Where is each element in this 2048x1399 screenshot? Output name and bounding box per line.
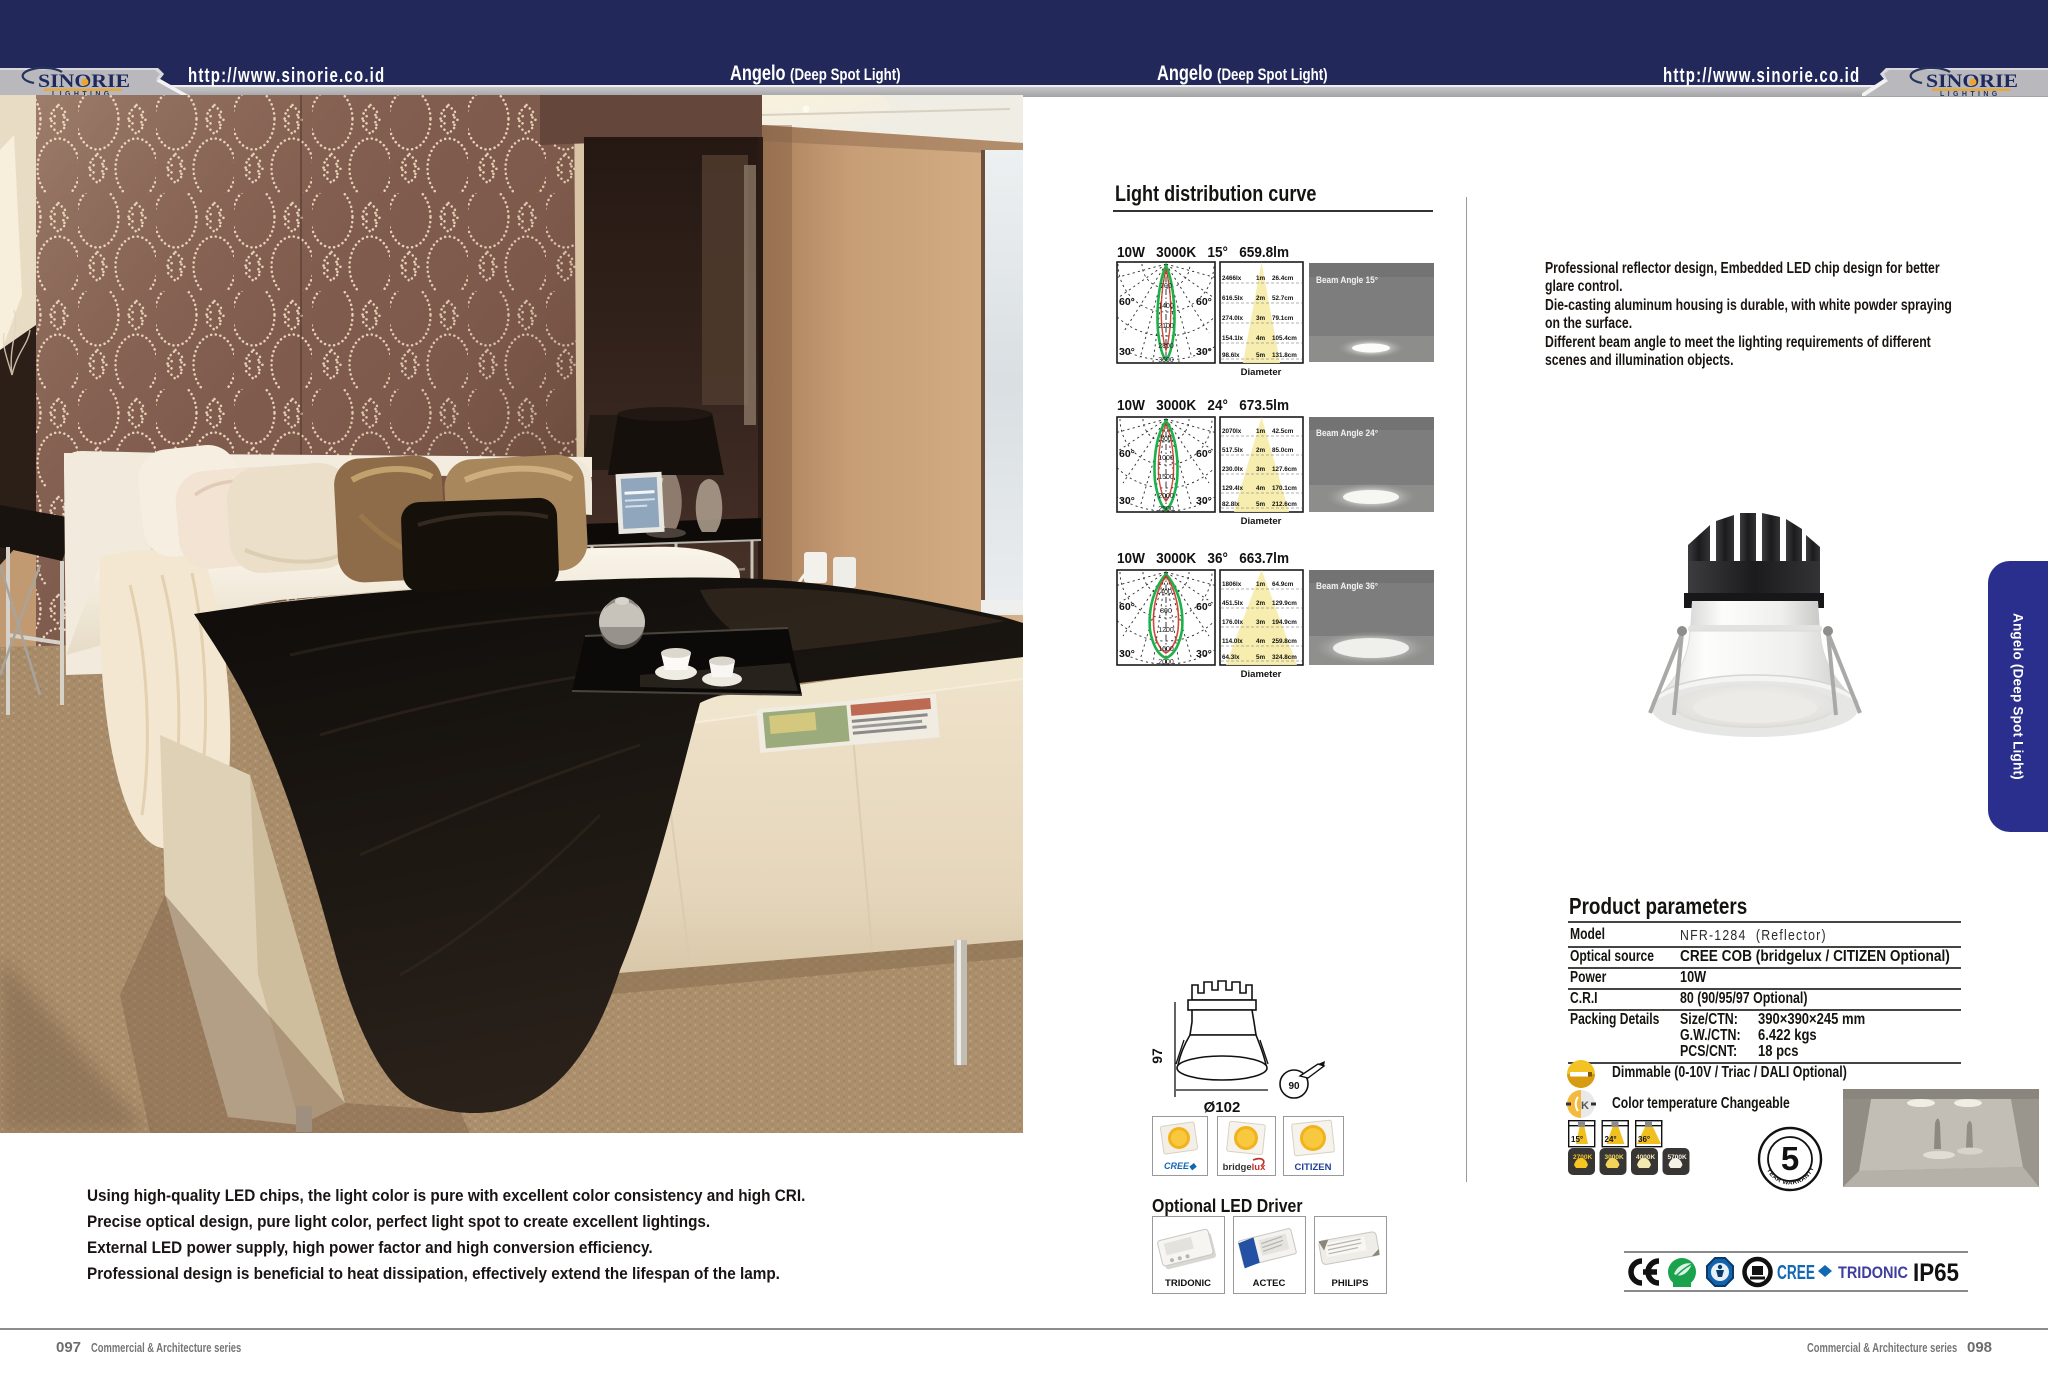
svg-text:TRIDONIC: TRIDONIC [1838, 1263, 1908, 1282]
svg-text:Diameter: Diameter [1241, 516, 1282, 527]
svg-text:1m: 1m [1256, 275, 1266, 282]
svg-text:2m: 2m [1256, 447, 1266, 454]
svg-text:4m: 4m [1256, 485, 1266, 492]
svg-text:230.0lx: 230.0lx [1222, 466, 1244, 473]
svg-text:64.9cm: 64.9cm [1272, 581, 1294, 588]
svg-text:LIGHTING: LIGHTING [1940, 91, 2001, 97]
svg-text:24°: 24° [1605, 1135, 1617, 1144]
svg-text:5700K: 5700K [1668, 1154, 1687, 1161]
svg-text:3m: 3m [1256, 466, 1266, 473]
svg-text:CITIZEN: CITIZEN [1295, 1162, 1332, 1173]
svg-text:PHILIPS: PHILIPS [1332, 1278, 1369, 1289]
svg-text:2m: 2m [1256, 600, 1266, 607]
svg-text:3500: 3500 [1158, 357, 1174, 364]
svg-text:15°: 15° [1571, 1135, 1583, 1144]
svg-text:154.1lx: 154.1lx [1222, 335, 1244, 342]
svg-text:90: 90 [1288, 1081, 1300, 1092]
svg-text:30°: 30° [1196, 495, 1212, 507]
svg-text:2800: 2800 [1158, 343, 1174, 350]
svg-text:105.4cm: 105.4cm [1272, 335, 1297, 342]
svg-text:26.4cm: 26.4cm [1272, 275, 1294, 282]
svg-text:3m: 3m [1256, 619, 1266, 626]
svg-text:30°: 30° [1196, 648, 1212, 660]
svg-text:79.1cm: 79.1cm [1272, 315, 1294, 322]
svg-text:5m: 5m [1256, 654, 1266, 661]
svg-text:2466lx: 2466lx [1222, 275, 1242, 282]
svg-text:800: 800 [1160, 608, 1172, 615]
svg-text:97: 97 [1149, 1048, 1165, 1064]
svg-text:2700K: 2700K [1573, 1154, 1592, 1161]
svg-text:98.6lx: 98.6lx [1222, 352, 1240, 359]
svg-text:2m: 2m [1256, 295, 1266, 302]
svg-text:700: 700 [1160, 283, 1172, 290]
svg-text:30°: 30° [1119, 648, 1135, 660]
svg-text:Beam Angle 15°: Beam Angle 15° [1316, 275, 1378, 285]
svg-text:170.1cm: 170.1cm [1272, 485, 1297, 492]
svg-text:451.5lx: 451.5lx [1222, 600, 1244, 607]
svg-text:127.6cm: 127.6cm [1272, 466, 1297, 473]
svg-text:274.0lx: 274.0lx [1222, 315, 1244, 322]
svg-text:129.9cm: 129.9cm [1272, 600, 1297, 607]
svg-text:3m: 3m [1256, 315, 1266, 322]
svg-text:60°: 60° [1119, 601, 1135, 613]
svg-text:IP65: IP65 [1913, 1259, 1959, 1287]
svg-text:Beam Angle 24°: Beam Angle 24° [1316, 428, 1378, 438]
svg-text:400: 400 [1160, 589, 1172, 596]
svg-text:10W 3000K 36° 663.7lm: 10W 3000K 36° 663.7lm [1117, 550, 1289, 567]
svg-text:10W 3000K 24° 673.5lm: 10W 3000K 24° 673.5lm [1117, 397, 1289, 414]
svg-text:517.5lx: 517.5lx [1222, 447, 1244, 454]
svg-text:129.4lx: 129.4lx [1222, 485, 1244, 492]
svg-text:259.8cm: 259.8cm [1272, 638, 1297, 645]
svg-text:30°: 30° [1119, 495, 1135, 507]
svg-text:1400: 1400 [1158, 303, 1174, 310]
svg-text:60°: 60° [1196, 296, 1212, 308]
svg-text:2000: 2000 [1158, 493, 1174, 500]
svg-text:2070lx: 2070lx [1222, 428, 1242, 435]
svg-text:194.9cm: 194.9cm [1272, 619, 1297, 626]
svg-text:5: 5 [1781, 1140, 1799, 1177]
svg-text:5m: 5m [1256, 352, 1266, 359]
svg-text:60°: 60° [1119, 448, 1135, 460]
svg-text:1200: 1200 [1158, 627, 1174, 634]
svg-text:bridgelux: bridgelux [1223, 1162, 1266, 1173]
svg-text:82.8lx: 82.8lx [1222, 501, 1240, 508]
svg-text:52.7cm: 52.7cm [1272, 295, 1294, 302]
svg-text:500: 500 [1160, 436, 1172, 443]
svg-text:4m: 4m [1256, 335, 1266, 342]
svg-text:Ø102: Ø102 [1204, 1099, 1241, 1116]
svg-text:Beam Angle 36°: Beam Angle 36° [1316, 581, 1378, 591]
svg-text:1806lx: 1806lx [1222, 581, 1242, 588]
svg-text:1m: 1m [1256, 428, 1266, 435]
svg-text:616.5lx: 616.5lx [1222, 295, 1244, 302]
svg-text:2100: 2100 [1158, 323, 1174, 330]
svg-text:4m: 4m [1256, 638, 1266, 645]
svg-text:60°: 60° [1119, 296, 1135, 308]
svg-text:30°: 30° [1196, 346, 1212, 358]
svg-text:30°: 30° [1119, 346, 1135, 358]
svg-text:ACTEC: ACTEC [1253, 1278, 1286, 1289]
svg-text:324.8cm: 324.8cm [1272, 654, 1297, 661]
svg-text:212.6cm: 212.6cm [1272, 501, 1297, 508]
svg-text:5m: 5m [1256, 501, 1266, 508]
svg-text:TRIDONIC: TRIDONIC [1165, 1278, 1211, 1289]
svg-text:4000K: 4000K [1636, 1154, 1655, 1161]
svg-text:60°: 60° [1196, 448, 1212, 460]
svg-text:2000: 2000 [1158, 659, 1174, 666]
svg-text:3000K: 3000K [1605, 1154, 1624, 1161]
svg-text:2500: 2500 [1158, 506, 1174, 513]
svg-text:1m: 1m [1256, 581, 1266, 588]
svg-text:131.8cm: 131.8cm [1272, 352, 1297, 359]
svg-text:85.0cm: 85.0cm [1272, 447, 1294, 454]
svg-text:CREE◆: CREE◆ [1164, 1161, 1197, 1171]
svg-text:36°: 36° [1638, 1135, 1650, 1144]
svg-text:64.3lx: 64.3lx [1222, 654, 1240, 661]
svg-text:CREE: CREE [1777, 1262, 1815, 1284]
svg-text:Diameter: Diameter [1241, 367, 1282, 378]
svg-text:1500: 1500 [1158, 474, 1174, 481]
svg-text:176.0lx: 176.0lx [1222, 619, 1244, 626]
svg-text:1000: 1000 [1158, 455, 1174, 462]
svg-text:42.5cm: 42.5cm [1272, 428, 1294, 435]
svg-text:60°: 60° [1196, 601, 1212, 613]
svg-text:1600: 1600 [1158, 646, 1174, 653]
svg-text:K: K [1581, 1100, 1589, 1112]
svg-text:Diameter: Diameter [1241, 669, 1282, 680]
svg-text:10W 3000K 15° 659.8lm: 10W 3000K 15° 659.8lm [1117, 244, 1289, 261]
svg-text:114.0lx: 114.0lx [1222, 638, 1243, 645]
